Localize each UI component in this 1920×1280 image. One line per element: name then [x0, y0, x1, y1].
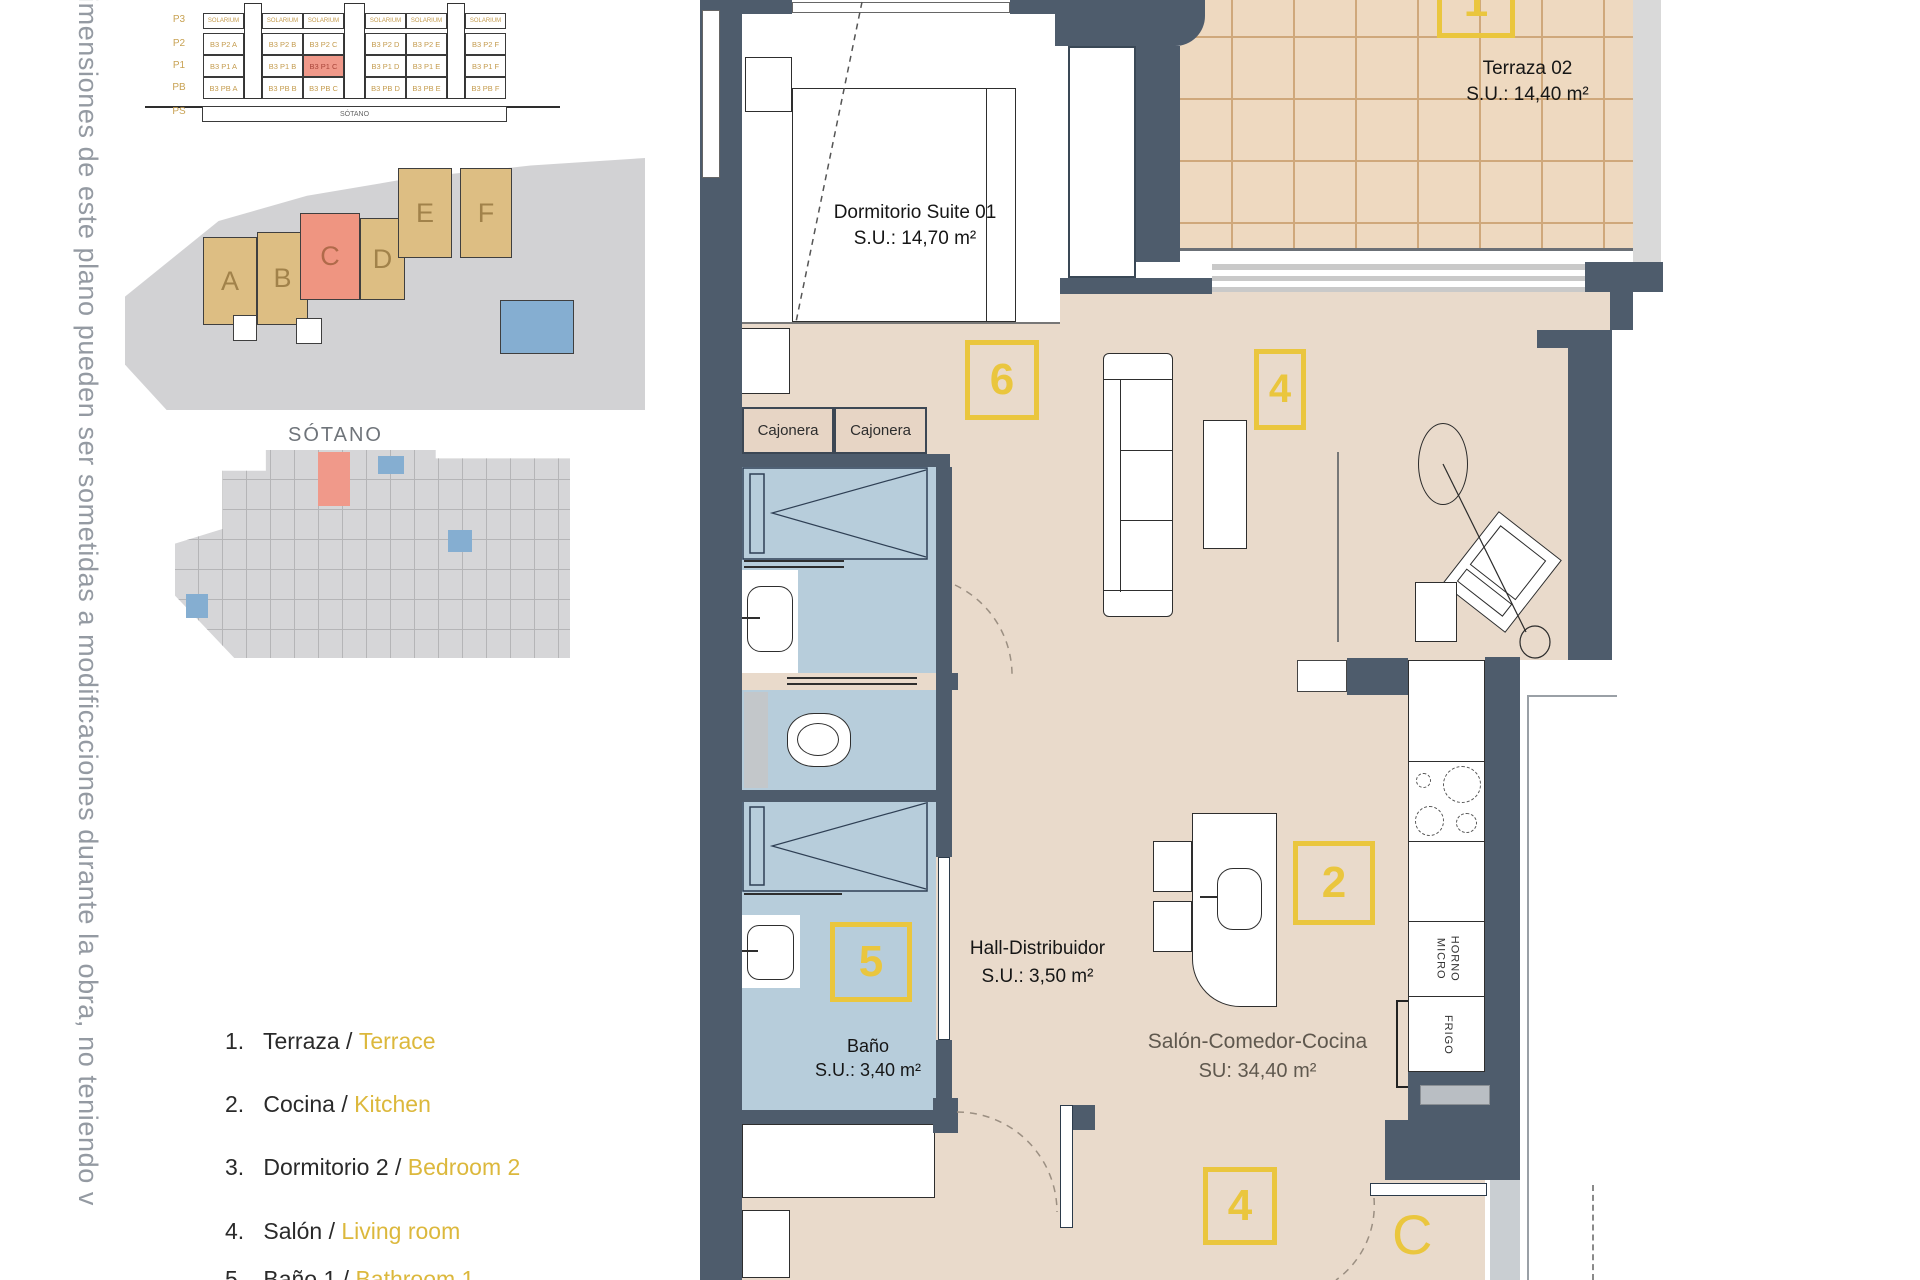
suite-area: S.U.: 14,70 m² [790, 228, 1040, 250]
door-swing-overlay [0, 0, 1920, 1280]
marker-cocina: 2 [1293, 841, 1375, 925]
marker-salon-top: 4 [1254, 349, 1306, 430]
marker-terraza: 1 [1437, 0, 1515, 38]
suite-name: Dormitorio Suite 01 [790, 202, 1040, 224]
bano-area: S.U.: 3,40 m² [788, 1060, 948, 1081]
terraza-area: S.U.: 14,40 m² [1420, 84, 1635, 106]
bano-name: Baño [808, 1036, 928, 1057]
bedroom2-door-swing-arc [957, 1112, 1057, 1212]
salon-name: Salón-Comedor-Cocina [1110, 1030, 1405, 1054]
marker-salon-bottom: 4 [1203, 1167, 1277, 1245]
marker-bano: 5 [830, 922, 912, 1002]
lamp-arm-line [1443, 464, 1526, 632]
ceiling-slope-dashed-line [796, 2, 862, 322]
floor-lamp-circle [1520, 626, 1550, 658]
bath-door-swing-arc [955, 585, 1012, 678]
entrance-door-letter: C [1392, 1202, 1432, 1267]
entrance-door-swing-arc [1336, 1198, 1374, 1280]
marker-suite: 6 [965, 340, 1039, 420]
salon-area: SU: 34,40 m² [1110, 1060, 1405, 1083]
terraza-name: Terraza 02 [1420, 58, 1635, 80]
floor-plan-sheet: imensiones de este plano pueden ser some… [0, 0, 1920, 1280]
hall-name: Hall-Distribuidor [940, 938, 1135, 960]
hall-area: S.U.: 3,50 m² [945, 966, 1130, 988]
